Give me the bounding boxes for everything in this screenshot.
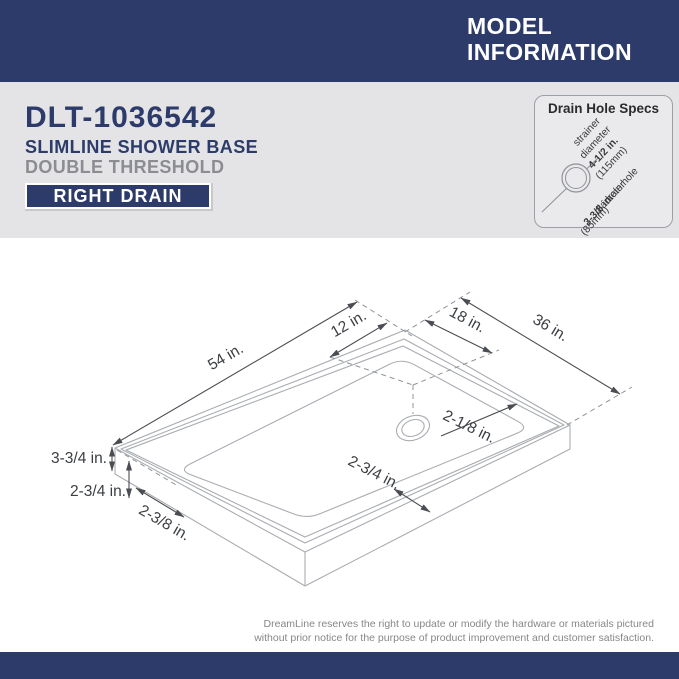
hidden-edge-left-corner <box>117 450 178 486</box>
disclaimer-line2: without prior notice for the purpose of … <box>254 632 654 646</box>
footer-bar <box>0 652 679 679</box>
extension-back-corner-left <box>355 300 412 336</box>
base-front-top-edges <box>115 425 570 552</box>
drain-inner-ring <box>399 417 426 440</box>
dim-line-2-3-4in-front <box>394 489 430 512</box>
product-threshold-type: DOUBLE THRESHOLD <box>25 157 224 178</box>
recessed-floor-edge <box>184 361 523 516</box>
drain <box>393 411 433 445</box>
drain-hole-specs-title: Drain Hole Specs <box>534 101 673 116</box>
extension-right-corner <box>567 387 632 425</box>
footer-disclaimer: DreamLine reserves the right to update o… <box>254 618 654 645</box>
dim-label-2-3-4in-front: 2-3/4 in. <box>345 453 403 494</box>
shower-base-body <box>115 330 570 586</box>
dim-label-54in: 54 in. <box>205 340 246 374</box>
dim-label-12in: 12 in. <box>328 307 369 341</box>
drain-construction-right <box>413 350 499 385</box>
dimension-labels: 54 in. 12 in. 18 in. 36 in. 2-1/8 in. 2-… <box>51 304 571 545</box>
rim-line-outer <box>121 339 564 543</box>
base-silhouette <box>115 330 570 586</box>
dimension-lines <box>112 298 620 517</box>
drain-construction-left <box>330 357 413 385</box>
dim-label-2-3-4in-left: 2-3/4 in. <box>70 483 126 500</box>
disclaimer-line1: DreamLine reserves the right to update o… <box>254 618 654 632</box>
dim-line-2-3-8in <box>136 488 184 517</box>
dim-label-2-1-8in: 2-1/8 in. <box>440 407 498 447</box>
dim-label-2-3-8in: 2-3/8 in. <box>136 502 193 545</box>
dim-line-36in <box>461 298 620 394</box>
right-drain-badge: RIGHT DRAIN <box>25 183 211 209</box>
rim-line-inner <box>126 346 559 537</box>
dim-line-18in <box>425 320 492 353</box>
product-model-number: DLT-1036542 <box>25 101 217 135</box>
construction-lines <box>117 292 632 486</box>
page-title-line1: MODEL <box>467 13 632 39</box>
dim-label-36in: 36 in. <box>530 311 571 345</box>
page-title-line2: INFORMATION <box>467 39 632 65</box>
model-information-sheet: MODEL INFORMATION DLT-1036542 SLIMLINE S… <box>0 0 679 679</box>
extension-back-corner-right <box>405 292 470 332</box>
dim-label-3-3-4in: 3-3/4 in. <box>51 450 107 467</box>
leader-line-2-1-8in <box>441 404 517 436</box>
dim-line-12in <box>330 323 387 357</box>
page-title: MODEL INFORMATION <box>467 13 632 65</box>
product-name: SLIMLINE SHOWER BASE <box>25 137 258 158</box>
dim-line-54in <box>113 302 357 445</box>
dim-label-18in: 18 in. <box>446 304 487 337</box>
drain-outer-ring <box>393 411 433 445</box>
